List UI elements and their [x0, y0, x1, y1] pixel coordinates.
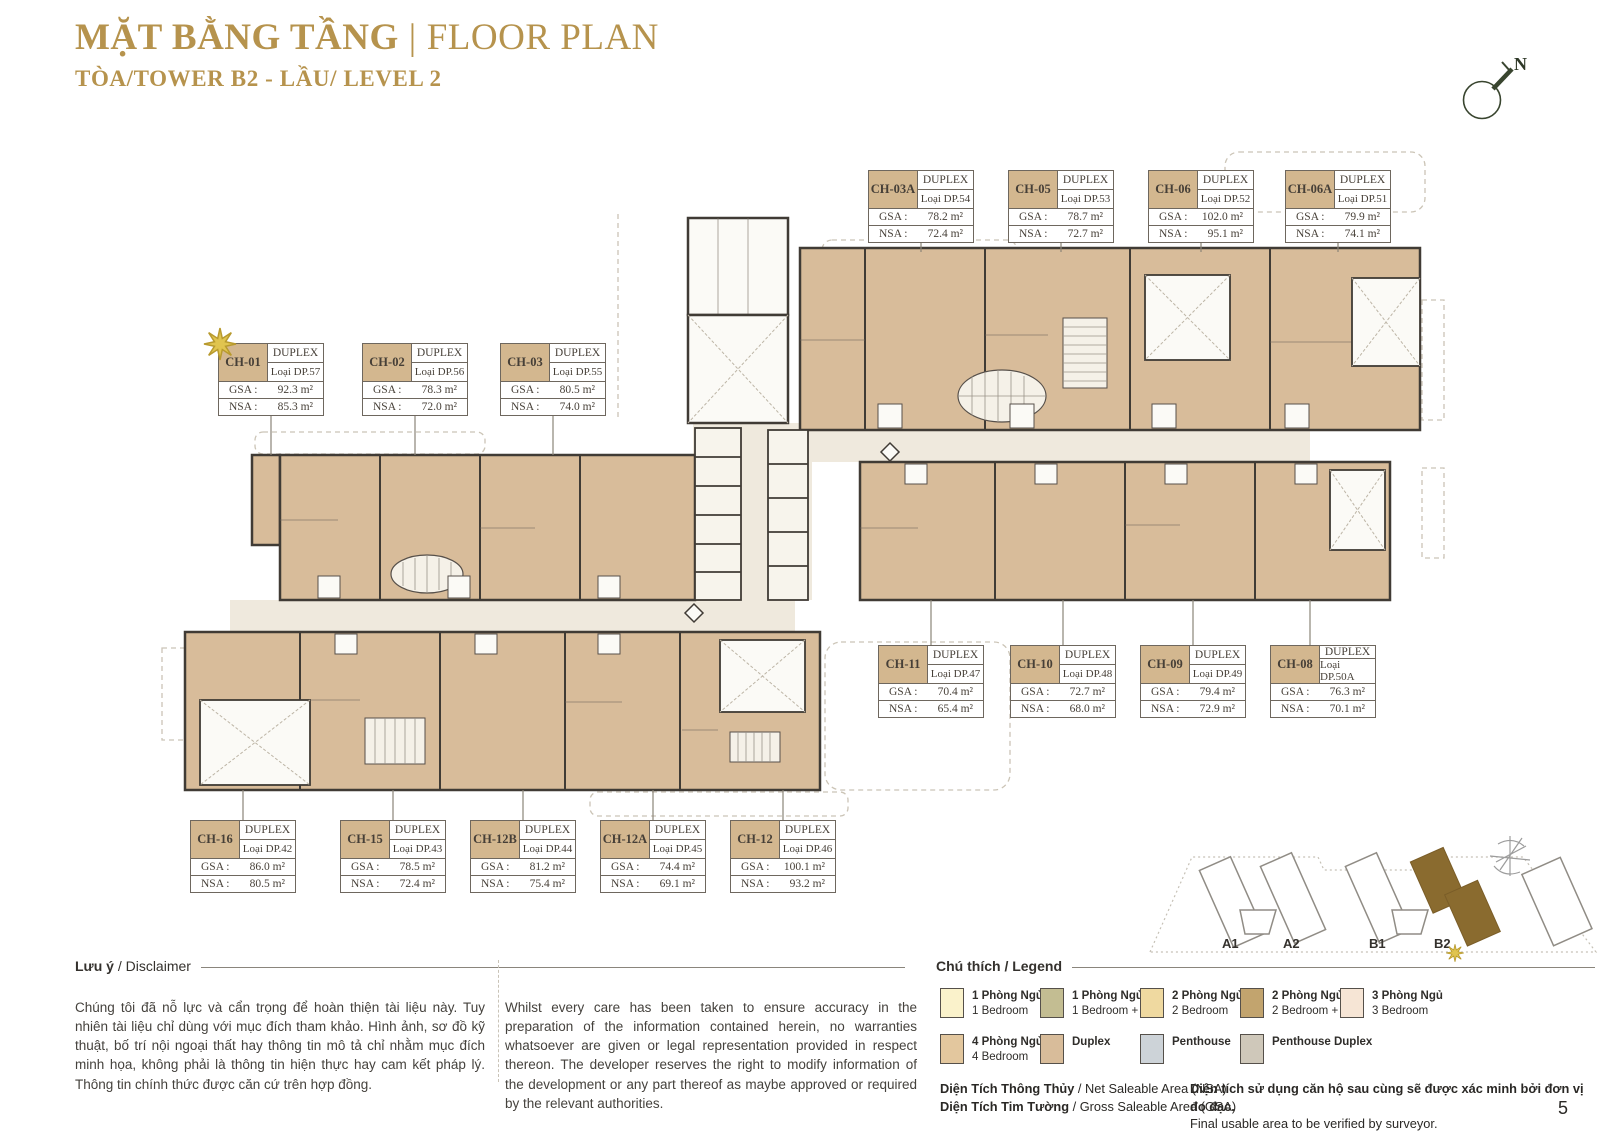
unit-code: CH-06 — [1149, 171, 1198, 208]
unit-variant: Loại DP.43 — [390, 840, 445, 858]
unit-code: CH-08 — [1271, 646, 1320, 683]
nsa-value: 80.5 m² — [250, 878, 285, 890]
unit-variant: Loại DP.49 — [1190, 665, 1245, 683]
gsa-value: 74.4 m² — [660, 861, 695, 873]
unit-code: CH-02 — [363, 344, 412, 381]
unit-box-ch-01: CH-01 DUPLEX Loại DP.57 GSA :92.3 m² NSA… — [218, 343, 324, 416]
unit-box-ch-03: CH-03 DUPLEX Loại DP.55 GSA :80.5 m² NSA… — [500, 343, 606, 416]
gsa-value: 79.4 m² — [1200, 686, 1235, 698]
unit-type: DUPLEX — [1335, 171, 1390, 190]
unit-type: DUPLEX — [520, 821, 575, 840]
unit-variant: Loại DP.52 — [1198, 190, 1253, 208]
gsa-label: GSA : — [1159, 211, 1187, 223]
gsa-value: 78.3 m² — [422, 384, 457, 396]
nsa-label: NSA : — [1296, 228, 1324, 240]
unit-type: DUPLEX — [412, 344, 467, 363]
unit-box-ch-03a: CH-03A DUPLEX Loại DP.54 GSA :78.2 m² NS… — [868, 170, 974, 243]
unit-variant: Loại DP.44 — [520, 840, 575, 858]
nsa-value: 68.0 m² — [1070, 703, 1105, 715]
unit-code: CH-09 — [1141, 646, 1190, 683]
unit-code: CH-03 — [501, 344, 550, 381]
unit-variant: Loại DP.56 — [412, 363, 467, 381]
nsa-value: 70.1 m² — [1330, 703, 1365, 715]
unit-variant: Loại DP.55 — [550, 363, 605, 381]
locator-label-b1: B1 — [1369, 936, 1386, 951]
nsa-value: 72.9 m² — [1200, 703, 1235, 715]
unit-variant: Loại DP.57 — [268, 363, 323, 381]
unit-type: DUPLEX — [918, 171, 973, 190]
unit-type: DUPLEX — [268, 344, 323, 363]
unit-variant: Loại DP.47 — [928, 665, 983, 683]
unit-variant: Loại DP.54 — [918, 190, 973, 208]
north-compass-icon: N — [1448, 44, 1558, 128]
site-locator-map: A1 A2 B1 B2 — [1150, 836, 1596, 962]
unit-box-ch-15: CH-15 DUPLEX Loại DP.43 GSA :78.5 m² NSA… — [340, 820, 446, 893]
unit-type: DUPLEX — [1058, 171, 1113, 190]
unit-highlight-star-icon — [201, 325, 239, 363]
nsa-value: 74.1 m² — [1345, 228, 1380, 240]
unit-box-ch-09: CH-09 DUPLEX Loại DP.49 GSA :79.4 m² NSA… — [1140, 645, 1246, 718]
gsa-value: 80.5 m² — [560, 384, 595, 396]
unit-variant: Loại DP.42 — [240, 840, 295, 858]
unit-code: CH-15 — [341, 821, 390, 858]
unit-code: CH-12B — [471, 821, 520, 858]
unit-variant: Loại DP.46 — [780, 840, 835, 858]
nsa-label: NSA : — [1021, 703, 1049, 715]
gsa-value: 81.2 m² — [530, 861, 565, 873]
unit-type: DUPLEX — [1060, 646, 1115, 665]
unit-type: DUPLEX — [780, 821, 835, 840]
unit-box-ch-12: CH-12 DUPLEX Loại DP.46 GSA :100.1 m² NS… — [730, 820, 836, 893]
locator-star-icon — [1446, 944, 1464, 962]
nsa-label: NSA : — [481, 878, 509, 890]
locator-label-a1: A1 — [1222, 936, 1239, 951]
unit-type: DUPLEX — [390, 821, 445, 840]
unit-box-ch-12a: CH-12A DUPLEX Loại DP.45 GSA :74.4 m² NS… — [600, 820, 706, 893]
site-compass-decoration-icon — [1490, 836, 1530, 876]
unit-code: CH-10 — [1011, 646, 1060, 683]
gsa-label: GSA : — [481, 861, 509, 873]
unit-variant: Loại DP.48 — [1060, 665, 1115, 683]
gsa-label: GSA : — [351, 861, 379, 873]
unit-code: CH-12 — [731, 821, 780, 858]
gsa-label: GSA : — [229, 384, 257, 396]
gsa-value: 70.4 m² — [938, 686, 973, 698]
nsa-label: NSA : — [373, 401, 401, 413]
gsa-value: 76.3 m² — [1330, 686, 1365, 698]
unit-variant: Loại DP.50A — [1320, 659, 1375, 683]
unit-type: DUPLEX — [1320, 646, 1375, 659]
gsa-value: 86.0 m² — [250, 861, 285, 873]
gsa-label: GSA : — [611, 861, 639, 873]
unit-type: DUPLEX — [1198, 171, 1253, 190]
unit-box-ch-06a: CH-06A DUPLEX Loại DP.51 GSA :79.9 m² NS… — [1285, 170, 1391, 243]
nsa-label: NSA : — [201, 878, 229, 890]
gsa-value: 79.9 m² — [1345, 211, 1380, 223]
unit-type: DUPLEX — [550, 344, 605, 363]
gsa-value: 78.2 m² — [928, 211, 963, 223]
gsa-value: 78.5 m² — [400, 861, 435, 873]
unit-type: DUPLEX — [240, 821, 295, 840]
unit-code: CH-12A — [601, 821, 650, 858]
nsa-label: NSA : — [879, 228, 907, 240]
gsa-label: GSA : — [889, 686, 917, 698]
unit-type: DUPLEX — [650, 821, 705, 840]
compass-north-label: N — [1514, 54, 1527, 74]
core-junction — [688, 218, 788, 423]
nsa-value: 72.4 m² — [400, 878, 435, 890]
gsa-value: 92.3 m² — [278, 384, 313, 396]
unit-box-ch-02: CH-02 DUPLEX Loại DP.56 GSA :78.3 m² NSA… — [362, 343, 468, 416]
nsa-value: 74.0 m² — [560, 401, 595, 413]
nsa-value: 69.1 m² — [660, 878, 695, 890]
locator-label-a2: A2 — [1283, 936, 1300, 951]
unit-variant: Loại DP.51 — [1335, 190, 1390, 208]
unit-type: DUPLEX — [1190, 646, 1245, 665]
nsa-value: 93.2 m² — [790, 878, 825, 890]
nsa-value: 85.3 m² — [278, 401, 313, 413]
gsa-label: GSA : — [879, 211, 907, 223]
unit-type: DUPLEX — [928, 646, 983, 665]
nsa-label: NSA : — [611, 878, 639, 890]
nsa-value: 72.7 m² — [1068, 228, 1103, 240]
unit-code: CH-11 — [879, 646, 928, 683]
gsa-label: GSA : — [741, 861, 769, 873]
unit-box-ch-10: CH-10 DUPLEX Loại DP.48 GSA :72.7 m² NSA… — [1010, 645, 1116, 718]
gsa-value: 100.1 m² — [784, 861, 825, 873]
gsa-label: GSA : — [1021, 686, 1049, 698]
nsa-label: NSA : — [1151, 703, 1179, 715]
nsa-label: NSA : — [741, 878, 769, 890]
gsa-label: GSA : — [373, 384, 401, 396]
nsa-label: NSA : — [1019, 228, 1047, 240]
nsa-value: 72.0 m² — [422, 401, 457, 413]
gsa-label: GSA : — [1151, 686, 1179, 698]
unit-box-ch-05: CH-05 DUPLEX Loại DP.53 GSA :78.7 m² NSA… — [1008, 170, 1114, 243]
unit-box-ch-12b: CH-12B DUPLEX Loại DP.44 GSA :81.2 m² NS… — [470, 820, 576, 893]
gsa-label: GSA : — [511, 384, 539, 396]
gsa-value: 72.7 m² — [1070, 686, 1105, 698]
gsa-label: GSA : — [1296, 211, 1324, 223]
unit-code: CH-06A — [1286, 171, 1335, 208]
unit-box-ch-16: CH-16 DUPLEX Loại DP.42 GSA :86.0 m² NSA… — [190, 820, 296, 893]
nsa-value: 65.4 m² — [938, 703, 973, 715]
nsa-value: 95.1 m² — [1208, 228, 1243, 240]
nsa-label: NSA : — [1159, 228, 1187, 240]
unit-code: CH-03A — [869, 171, 918, 208]
locator-label-b2: B2 — [1434, 936, 1451, 951]
unit-variant: Loại DP.53 — [1058, 190, 1113, 208]
unit-code: CH-05 — [1009, 171, 1058, 208]
gsa-label: GSA : — [1281, 686, 1309, 698]
unit-variant: Loại DP.45 — [650, 840, 705, 858]
nsa-label: NSA : — [229, 401, 257, 413]
nsa-value: 75.4 m² — [530, 878, 565, 890]
gsa-value: 102.0 m² — [1202, 211, 1243, 223]
unit-box-ch-11: CH-11 DUPLEX Loại DP.47 GSA :70.4 m² NSA… — [878, 645, 984, 718]
nsa-label: NSA : — [351, 878, 379, 890]
unit-box-ch-08: CH-08 DUPLEX Loại DP.50A GSA :76.3 m² NS… — [1270, 645, 1376, 718]
gsa-label: GSA : — [201, 861, 229, 873]
nsa-label: NSA : — [511, 401, 539, 413]
nsa-label: NSA : — [889, 703, 917, 715]
nsa-label: NSA : — [1281, 703, 1309, 715]
gsa-value: 78.7 m² — [1068, 211, 1103, 223]
unit-code: CH-16 — [191, 821, 240, 858]
gsa-label: GSA : — [1019, 211, 1047, 223]
nsa-value: 72.4 m² — [928, 228, 963, 240]
unit-box-ch-06: CH-06 DUPLEX Loại DP.52 GSA :102.0 m² NS… — [1148, 170, 1254, 243]
